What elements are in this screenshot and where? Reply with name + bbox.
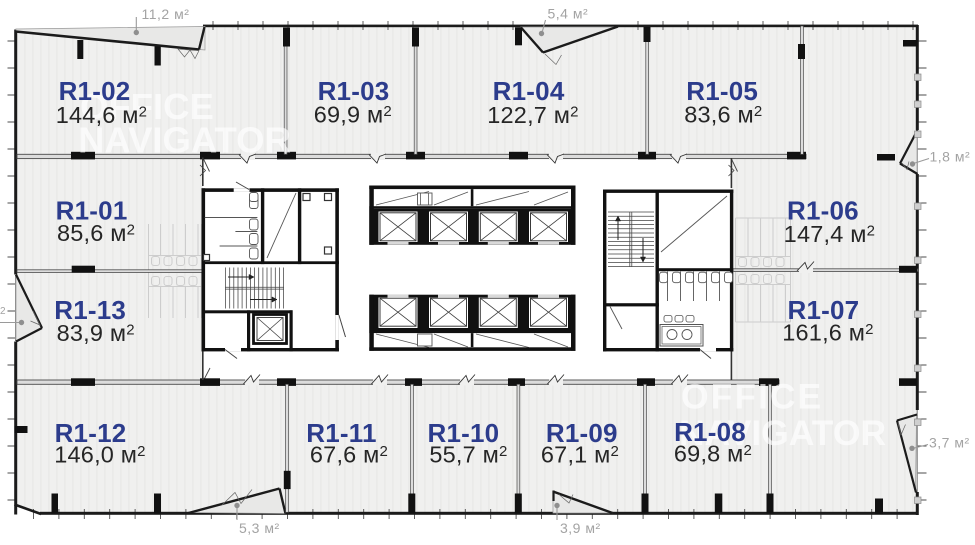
svg-text:5,4 м²: 5,4 м² [548,6,589,22]
svg-text:1,8 м²: 1,8 м² [930,149,971,165]
svg-text:5,3 м²: 5,3 м² [239,520,280,536]
svg-text:OFFICE: OFFICE [681,377,823,417]
svg-text:67,1 м2: 67,1 м2 [541,442,619,468]
svg-text:144,6 м2: 144,6 м2 [56,102,147,128]
svg-text:67,6 м2: 67,6 м2 [310,442,388,468]
svg-text:85,6 м2: 85,6 м2 [57,220,135,246]
svg-text:3,7 м²: 3,7 м² [929,435,970,451]
svg-text:69,9 м2: 69,9 м2 [314,101,392,127]
svg-text:83,6 м2: 83,6 м2 [684,102,762,128]
svg-text:69,8 м2: 69,8 м2 [674,440,752,466]
svg-text:83,9 м2: 83,9 м2 [57,320,135,346]
svg-text:2: 2 [0,306,6,317]
svg-text:146,0 м2: 146,0 м2 [54,442,145,468]
svg-text:161,6 м2: 161,6 м2 [782,320,873,346]
svg-text:3,9 м²: 3,9 м² [560,520,601,536]
svg-text:55,7 м2: 55,7 м2 [429,442,507,468]
svg-text:122,7 м2: 122,7 м2 [487,102,578,128]
svg-text:11,2 м²: 11,2 м² [142,6,190,22]
svg-text:147,4 м2: 147,4 м2 [784,221,875,247]
